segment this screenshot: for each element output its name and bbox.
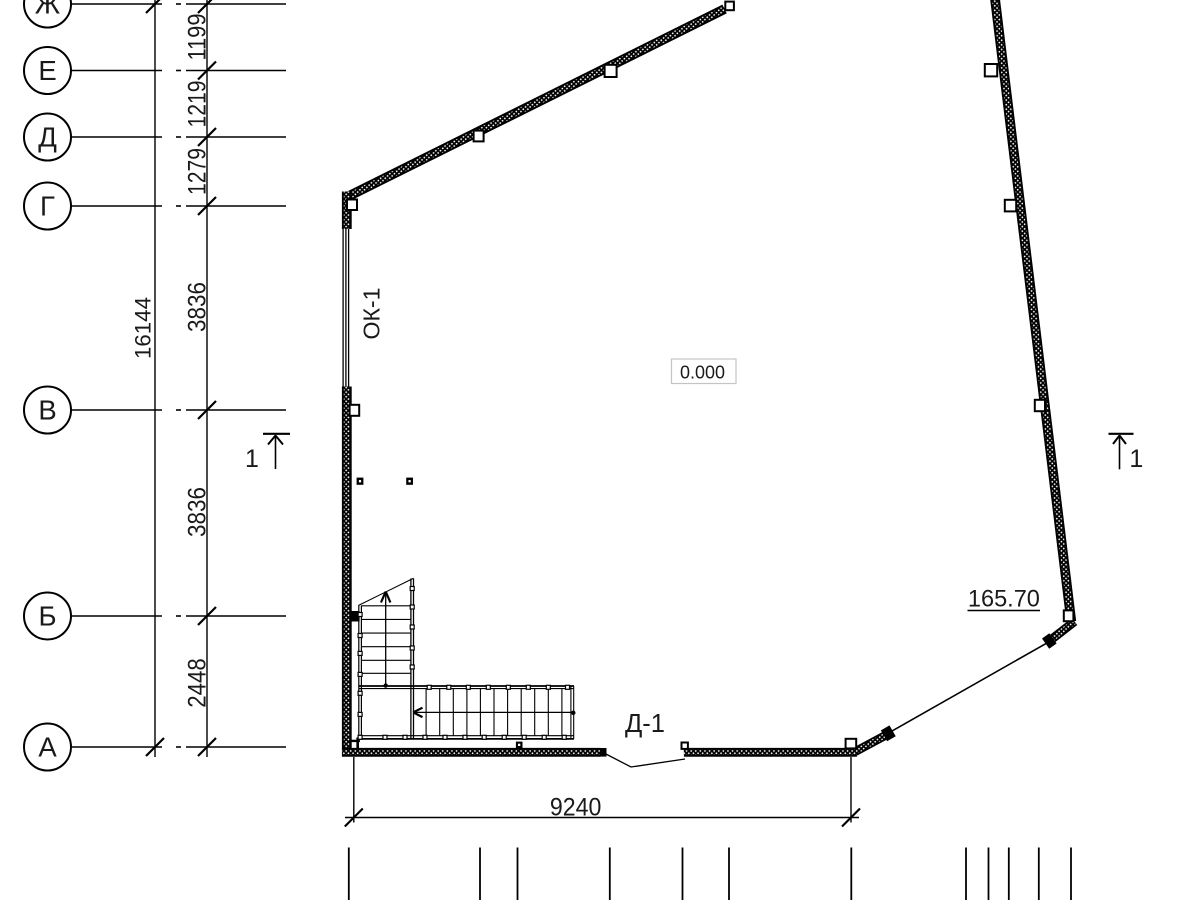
- svg-text:1279: 1279: [184, 148, 212, 195]
- svg-text:9240: 9240: [550, 794, 602, 822]
- svg-text:ОК-1: ОК-1: [358, 288, 384, 340]
- svg-text:3836: 3836: [184, 282, 212, 332]
- svg-text:1: 1: [1129, 445, 1143, 473]
- svg-text:1199: 1199: [184, 14, 212, 61]
- svg-text:А: А: [38, 732, 57, 763]
- svg-text:3836: 3836: [184, 487, 212, 537]
- svg-text:В: В: [38, 395, 56, 426]
- svg-text:2448: 2448: [184, 658, 212, 708]
- svg-text:Б: Б: [38, 601, 56, 632]
- svg-text:165.70: 165.70: [968, 586, 1040, 613]
- svg-text:Е: Е: [38, 55, 56, 86]
- svg-text:Г: Г: [40, 191, 55, 222]
- svg-text:16144: 16144: [131, 297, 156, 359]
- svg-text:Д-1: Д-1: [625, 708, 665, 738]
- svg-text:Д: Д: [38, 122, 57, 153]
- svg-text:Ж: Ж: [35, 0, 61, 20]
- svg-text:1219: 1219: [184, 81, 212, 128]
- svg-text:1: 1: [245, 445, 259, 473]
- svg-text:0.000: 0.000: [680, 361, 725, 382]
